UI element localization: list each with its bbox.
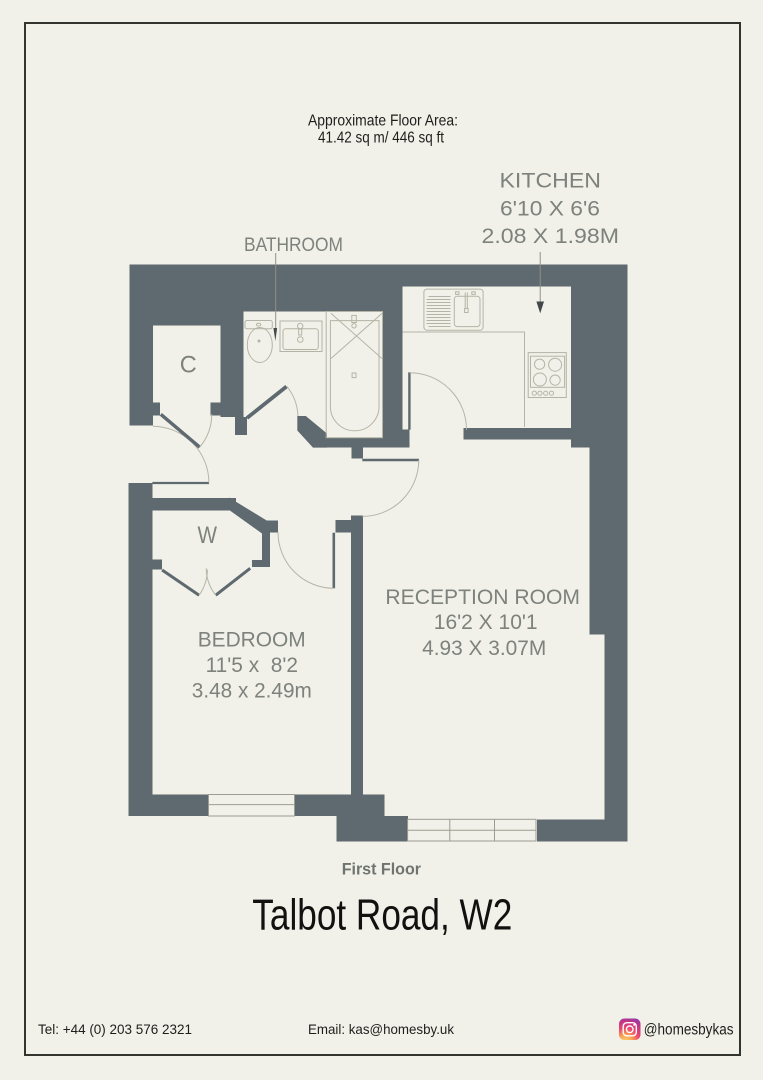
svg-text:W: W — [198, 522, 218, 549]
svg-text:3.48 x 2.49m: 3.48 x 2.49m — [192, 679, 312, 703]
svg-text:6'10 X 6'6: 6'10 X 6'6 — [500, 197, 600, 221]
svg-text:2.08 X 1.98M: 2.08 X 1.98M — [482, 224, 620, 248]
svg-text:11'5 x 8'2: 11'5 x 8'2 — [206, 653, 298, 677]
svg-text:Tel: +44 (0) 203 576 2321: Tel: +44 (0) 203 576 2321 — [38, 1021, 192, 1037]
svg-text:C: C — [180, 352, 197, 379]
svg-text:41.42 sq m/ 446 sq ft: 41.42 sq m/ 446 sq ft — [318, 129, 444, 146]
svg-text:KITCHEN: KITCHEN — [500, 169, 602, 193]
svg-text:16'2 X 10'1: 16'2 X 10'1 — [434, 610, 538, 634]
svg-text:@homesbykas: @homesbykas — [644, 1022, 734, 1039]
svg-text:BEDROOM: BEDROOM — [198, 628, 306, 652]
svg-text:BATHROOM: BATHROOM — [244, 235, 343, 256]
svg-text:4.93 X 3.07M: 4.93 X 3.07M — [422, 636, 546, 660]
svg-text:Talbot Road, W2: Talbot Road, W2 — [252, 891, 512, 940]
svg-text:Approximate Floor Area:: Approximate Floor Area: — [308, 112, 458, 129]
svg-text:RECEPTION ROOM: RECEPTION ROOM — [385, 585, 580, 609]
svg-text:First Floor: First Floor — [342, 859, 422, 878]
svg-text:Email: kas@homesby.uk: Email: kas@homesby.uk — [308, 1021, 455, 1037]
